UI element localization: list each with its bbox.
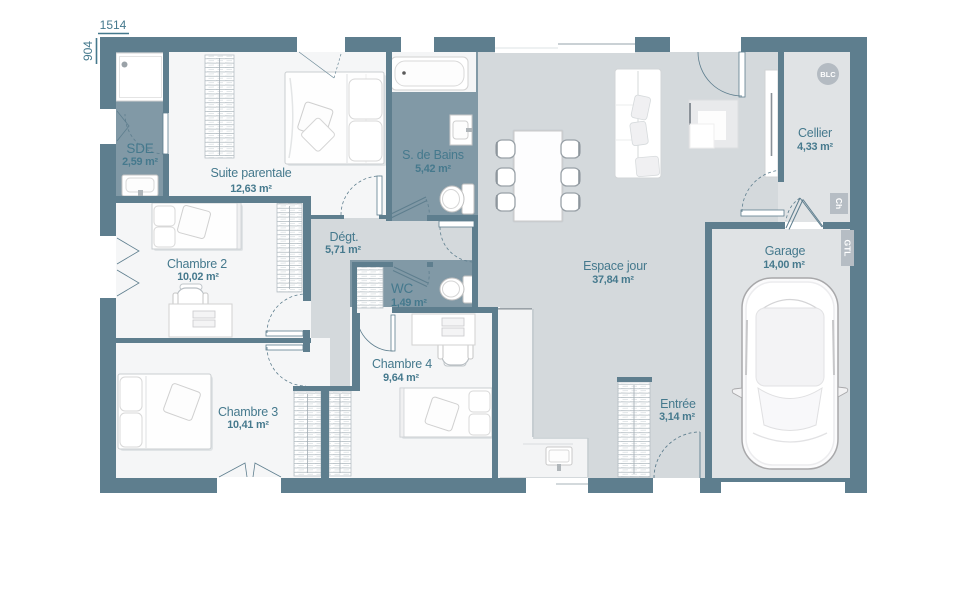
- svg-text:Cellier: Cellier: [798, 126, 832, 140]
- svg-text:Suite parentale: Suite parentale: [210, 166, 291, 180]
- svg-text:1,49 m²: 1,49 m²: [391, 297, 427, 309]
- svg-text:1514: 1514: [100, 18, 127, 32]
- svg-text:3,14 m²: 3,14 m²: [659, 411, 695, 423]
- svg-text:S. de Bains: S. de Bains: [402, 148, 464, 162]
- svg-text:Chambre 2: Chambre 2: [167, 257, 227, 271]
- svg-text:904: 904: [81, 41, 95, 61]
- svg-text:4,33 m²: 4,33 m²: [797, 141, 833, 153]
- svg-text:Dégt.: Dégt.: [330, 230, 359, 244]
- svg-text:14,00 m²: 14,00 m²: [763, 259, 805, 271]
- svg-text:Espace jour: Espace jour: [583, 259, 647, 273]
- svg-text:12,63 m²: 12,63 m²: [230, 183, 272, 195]
- svg-text:Chambre 3: Chambre 3: [218, 405, 278, 419]
- svg-text:5,71 m²: 5,71 m²: [325, 244, 361, 256]
- svg-text:37,84 m²: 37,84 m²: [592, 274, 634, 286]
- svg-text:Chambre 4: Chambre 4: [372, 357, 432, 371]
- svg-text:SDE: SDE: [126, 141, 153, 156]
- svg-text:9,64 m²: 9,64 m²: [383, 372, 419, 384]
- svg-text:10,41 m²: 10,41 m²: [227, 419, 269, 431]
- svg-text:BLC: BLC: [820, 70, 836, 79]
- svg-text:10,02 m²: 10,02 m²: [177, 271, 219, 283]
- svg-text:2,59 m²: 2,59 m²: [122, 156, 158, 168]
- svg-text:Entrée: Entrée: [660, 397, 696, 411]
- svg-text:Ch: Ch: [834, 198, 844, 209]
- svg-text:Garage: Garage: [765, 244, 806, 258]
- svg-text:GTL: GTL: [843, 240, 853, 257]
- svg-text:5,42 m²: 5,42 m²: [415, 163, 451, 175]
- svg-text:WC: WC: [391, 281, 414, 296]
